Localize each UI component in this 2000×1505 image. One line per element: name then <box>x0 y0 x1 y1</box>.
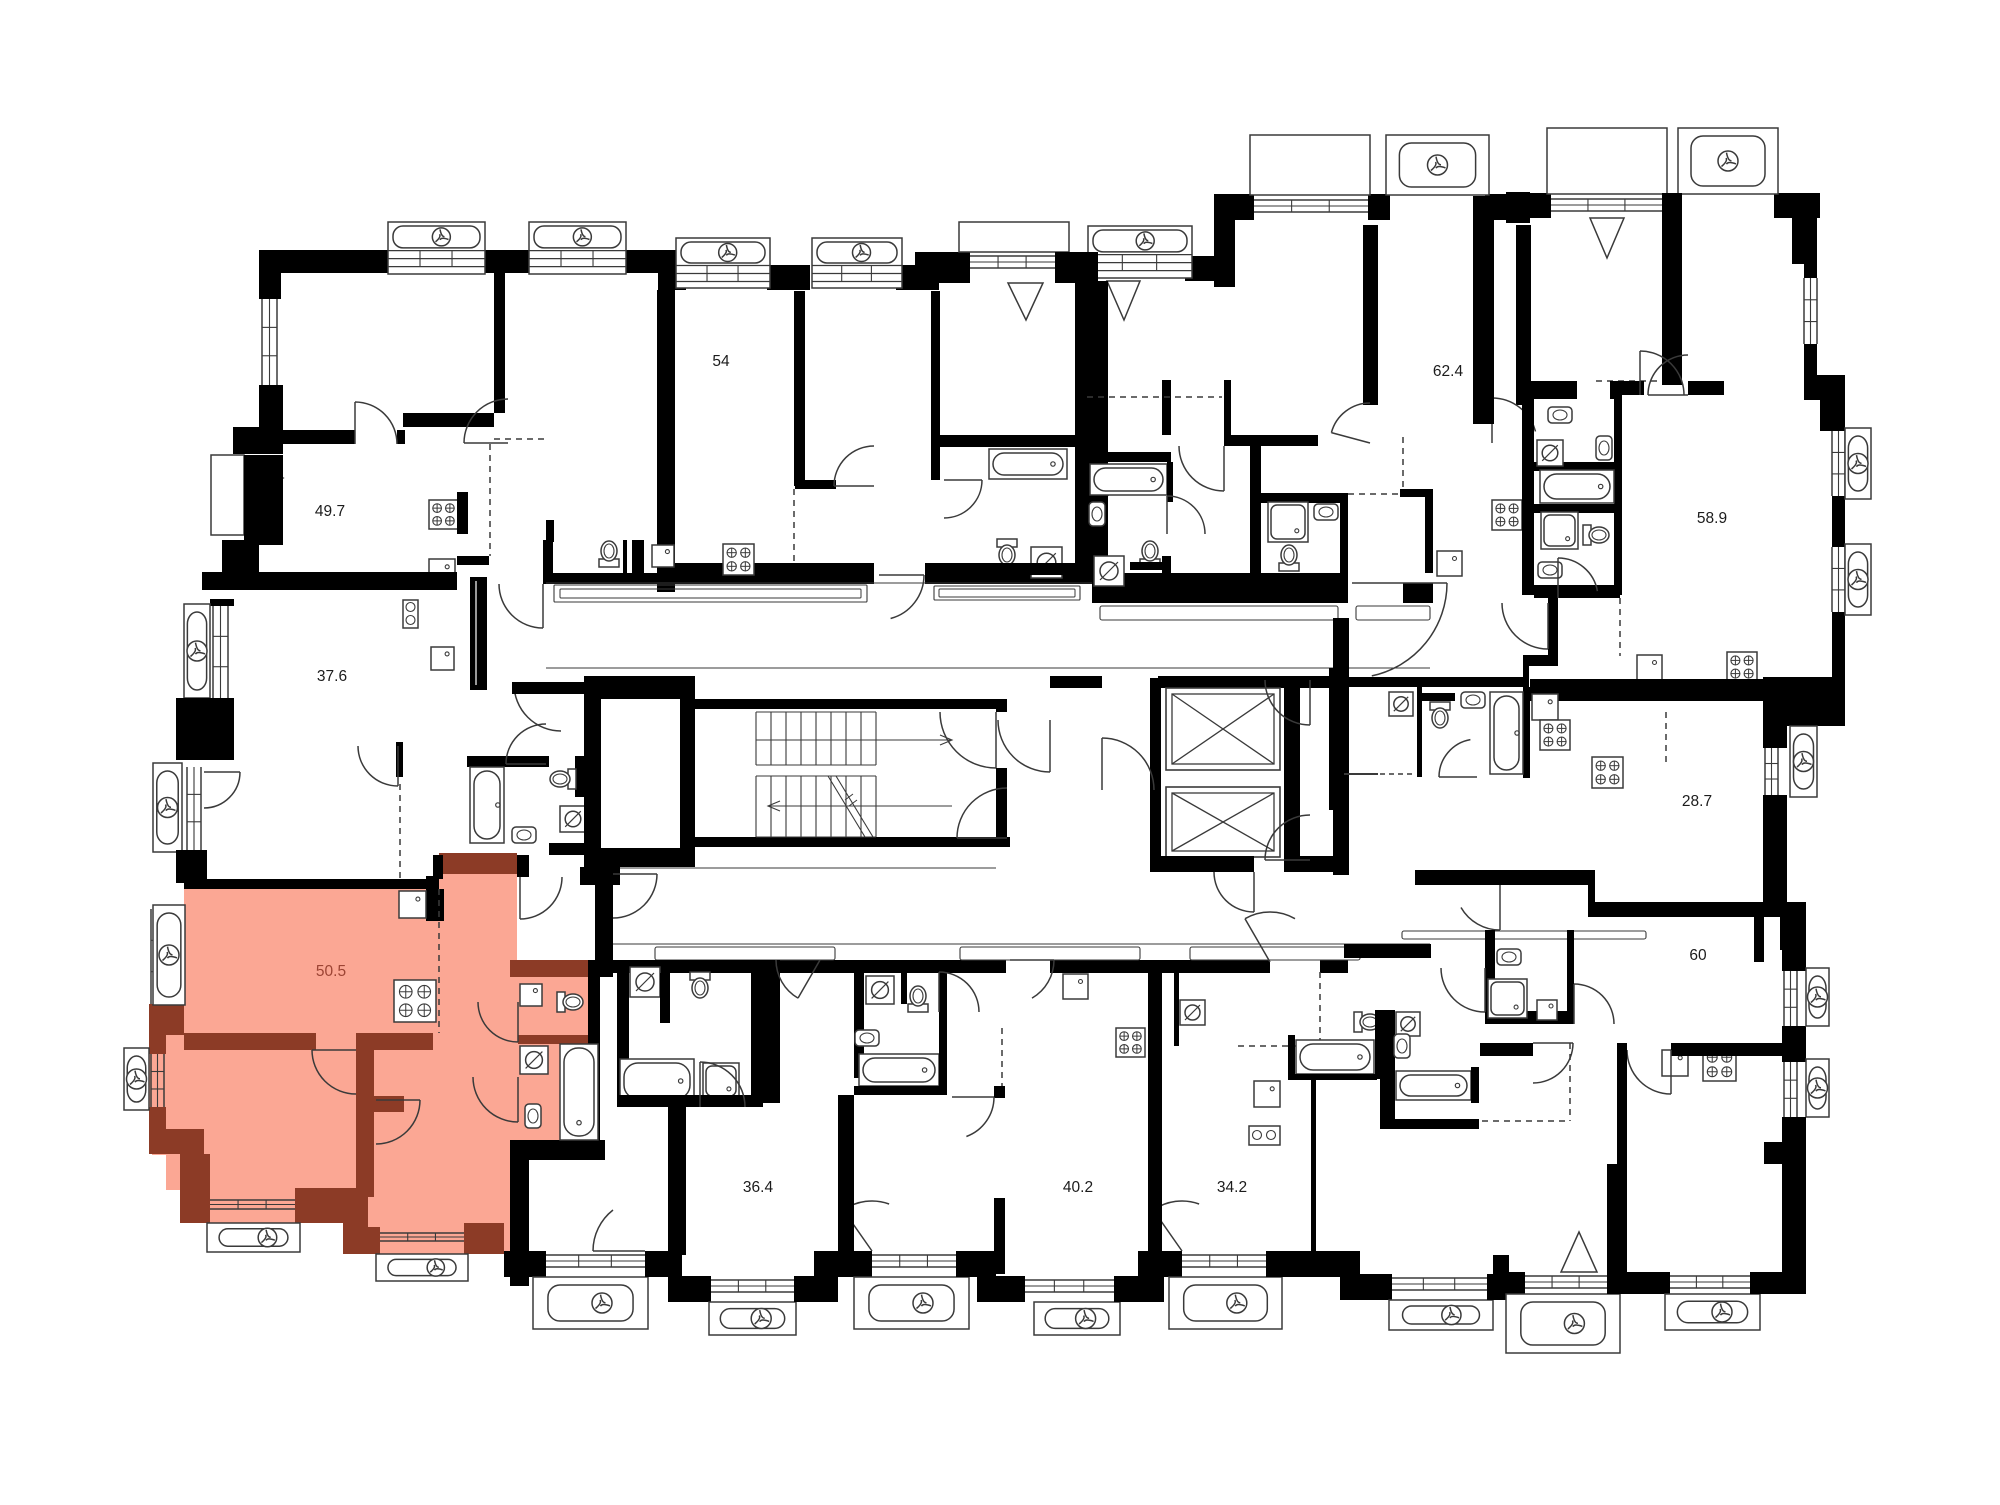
svg-text:28.7: 28.7 <box>1682 793 1712 810</box>
svg-text:34.2: 34.2 <box>1217 1179 1247 1196</box>
svg-text:58.9: 58.9 <box>1697 510 1727 527</box>
svg-text:50.5: 50.5 <box>316 963 346 980</box>
svg-text:62.4: 62.4 <box>1433 363 1464 380</box>
svg-text:60: 60 <box>1689 947 1707 964</box>
svg-text:49.7: 49.7 <box>315 503 345 520</box>
svg-text:54: 54 <box>712 353 730 370</box>
svg-text:36.4: 36.4 <box>743 1179 774 1196</box>
svg-text:37.6: 37.6 <box>317 668 347 685</box>
svg-text:40.2: 40.2 <box>1063 1179 1093 1196</box>
